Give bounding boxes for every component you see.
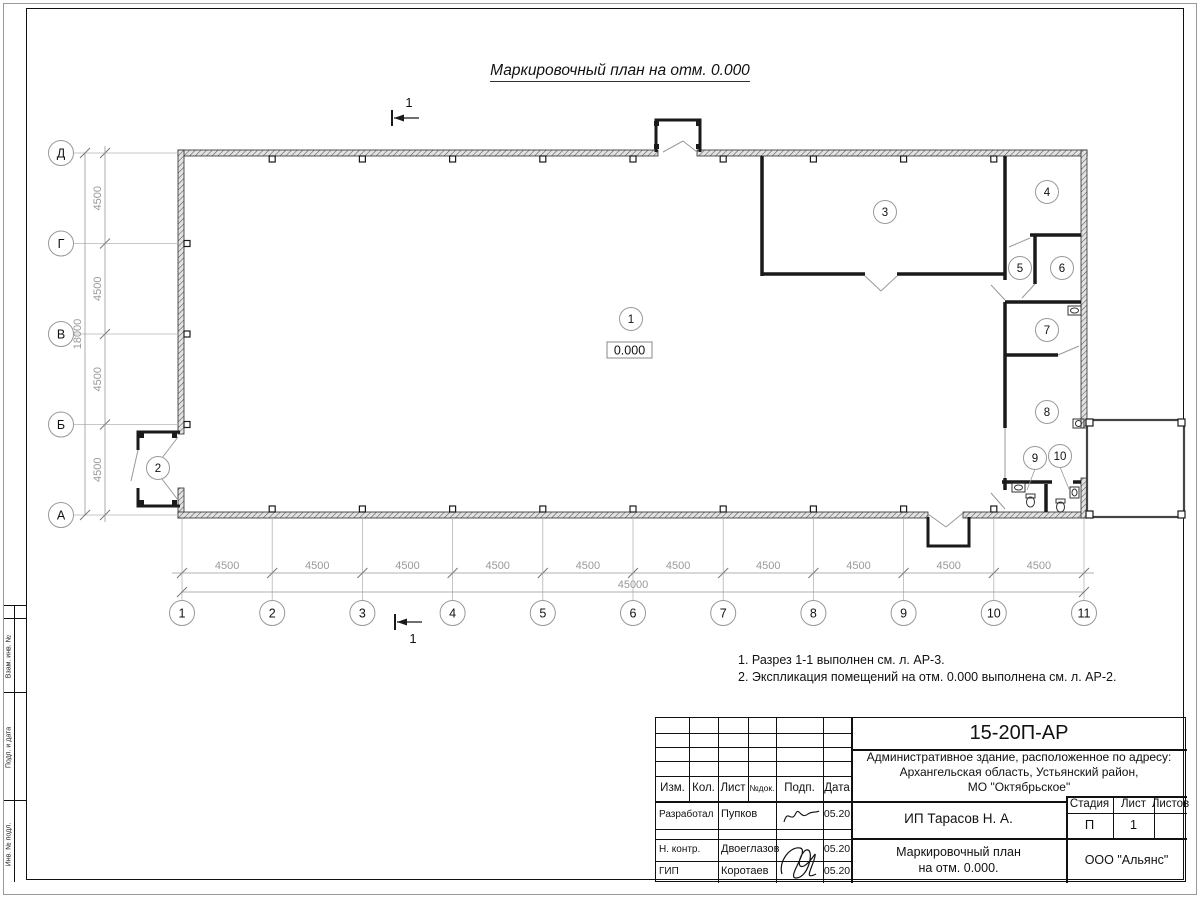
axis-label: 8 xyxy=(810,607,817,621)
dim-label: 4500 xyxy=(756,560,780,572)
column-mark xyxy=(630,156,636,162)
column-mark xyxy=(540,156,546,162)
column-mark xyxy=(991,156,997,162)
col-list: Лист xyxy=(718,776,748,801)
stage-header: Стадия xyxy=(1066,796,1113,813)
col-data: Дата xyxy=(823,776,851,801)
row-role: ГИП xyxy=(659,861,718,883)
column-mark xyxy=(720,506,726,512)
exterior-walls xyxy=(178,150,1087,518)
annex-walls xyxy=(138,120,969,546)
col-podp: Подп. xyxy=(776,776,823,801)
room-number: 7 xyxy=(1044,325,1050,337)
elevation-label: 0.000 xyxy=(614,344,645,358)
row-name: Двоеглазов xyxy=(721,839,776,861)
object-name: Административное здание, расположенное п… xyxy=(851,749,1187,796)
column-mark xyxy=(720,156,726,162)
column-mark xyxy=(359,156,365,162)
room-number: 4 xyxy=(1044,187,1051,199)
col-kol: Кол. xyxy=(689,776,718,801)
column-mark xyxy=(630,506,636,512)
section-label: 1 xyxy=(405,95,412,110)
dim-label: 4500 xyxy=(92,458,104,482)
axis-label: В xyxy=(57,328,65,342)
sheet-title: Маркировочный план на отм. 0.000. xyxy=(851,838,1066,883)
dim-total-label: 18000 xyxy=(72,319,84,350)
drawing-sheet: Взам. инв. № Подп. и дата Инв. № подл. М… xyxy=(0,0,1200,900)
listov-header: Листов xyxy=(1154,796,1187,813)
signature xyxy=(778,804,822,828)
dim-total-label: 45000 xyxy=(618,579,649,591)
axis-label: Д xyxy=(57,147,66,161)
dim-label: 4500 xyxy=(215,560,239,572)
column-mark xyxy=(184,331,190,337)
column-mark xyxy=(184,241,190,247)
room-number: 8 xyxy=(1044,407,1050,419)
annex-corner-columns xyxy=(139,121,701,505)
axis-label: 10 xyxy=(987,607,1001,621)
door-leaves xyxy=(131,141,1079,527)
col-ndok: №док. xyxy=(748,776,776,801)
axis-label: 3 xyxy=(359,607,366,621)
notes: 1. Разрез 1-1 выполнен см. л. АР-3. 2. Э… xyxy=(738,652,1116,685)
section-arrow xyxy=(397,619,407,626)
column-mark xyxy=(901,506,907,512)
room-leader xyxy=(1027,469,1035,490)
loading-platform xyxy=(1086,419,1185,518)
room-number: 9 xyxy=(1032,453,1038,465)
row-name: Пупков xyxy=(721,801,776,829)
column-mark xyxy=(540,506,546,512)
column-mark xyxy=(810,506,816,512)
room-number: 5 xyxy=(1017,263,1023,275)
column-mark xyxy=(901,156,907,162)
row-date: 05.20 xyxy=(823,861,851,883)
row-date: 05.20 xyxy=(823,839,851,861)
axis-label: 1 xyxy=(179,607,186,621)
row-date: 05.20 xyxy=(823,801,851,829)
column-mark xyxy=(359,506,365,512)
room-number: 3 xyxy=(882,207,888,219)
axis-label: Б xyxy=(57,418,65,432)
dim-label: 4500 xyxy=(92,367,104,391)
axis-label: 6 xyxy=(630,607,637,621)
dim-label: 4500 xyxy=(576,560,600,572)
room-number: 6 xyxy=(1059,263,1065,275)
section-arrow xyxy=(394,115,404,122)
list-header: Лист xyxy=(1113,796,1154,813)
column-mark xyxy=(269,506,275,512)
column-mark xyxy=(269,156,275,162)
room-number: 2 xyxy=(155,463,161,475)
title-block: 15-20П-АР Административное здание, распо… xyxy=(655,717,1186,882)
col-izm: Изм. xyxy=(656,776,689,801)
axis-label: 5 xyxy=(539,607,546,621)
dim-label: 4500 xyxy=(666,560,690,572)
axis-label: Г xyxy=(58,237,65,251)
sheet-number: 1 xyxy=(1113,813,1154,838)
column-mark xyxy=(991,506,997,512)
section-label: 1 xyxy=(409,631,416,646)
room-number: 10 xyxy=(1054,451,1067,463)
axis-label: 4 xyxy=(449,607,456,621)
axis-label: А xyxy=(57,509,66,523)
room-number: 1 xyxy=(628,314,634,326)
dim-label: 4500 xyxy=(92,277,104,301)
axis-label: 11 xyxy=(1078,607,1091,621)
dim-label: 4500 xyxy=(485,560,509,572)
dim-label: 4500 xyxy=(936,560,960,572)
axis-label: 2 xyxy=(269,607,276,621)
row-role: Н. контр. xyxy=(659,839,718,861)
dim-label: 4500 xyxy=(92,186,104,210)
organization: ООО "Альянс" xyxy=(1066,838,1187,883)
column-mark xyxy=(450,506,456,512)
row-role: Разработал xyxy=(659,801,718,829)
row-name: Коротаев xyxy=(721,861,776,883)
column-mark xyxy=(184,422,190,428)
dim-label: 4500 xyxy=(846,560,870,572)
client-name: ИП Тарасов Н. А. xyxy=(851,801,1066,838)
column-mark xyxy=(450,156,456,162)
note-line: 1. Разрез 1-1 выполнен см. л. АР-3. xyxy=(738,652,1116,669)
column-mark xyxy=(810,156,816,162)
axis-label: 9 xyxy=(900,607,907,621)
axis-label: 7 xyxy=(720,607,727,621)
document-code: 15-20П-АР xyxy=(851,718,1187,749)
stage-value: П xyxy=(1066,813,1113,838)
dim-label: 4500 xyxy=(1027,560,1051,572)
note-line: 2. Экспликация помещений на отм. 0.000 в… xyxy=(738,669,1116,686)
room-leader xyxy=(1060,467,1069,489)
signature xyxy=(774,840,824,882)
dim-label: 4500 xyxy=(305,560,329,572)
dim-label: 4500 xyxy=(395,560,419,572)
